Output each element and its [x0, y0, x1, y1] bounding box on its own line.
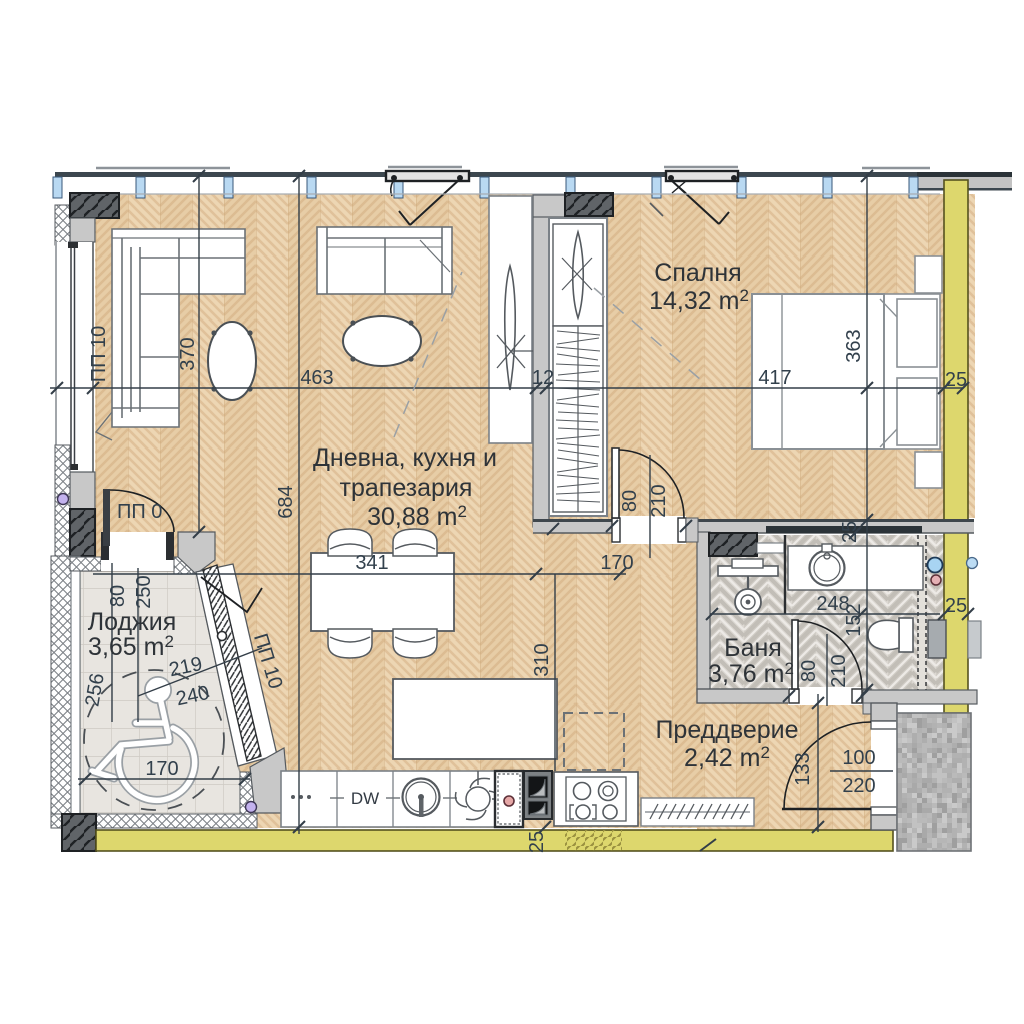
- svg-text:80: 80: [107, 585, 129, 607]
- svg-text:трапезария: трапезария: [340, 474, 473, 502]
- svg-text:210: 210: [648, 484, 670, 517]
- svg-text:3,65 m2: 3,65 m2: [88, 632, 174, 661]
- svg-text:14,32 m2: 14,32 m2: [649, 286, 749, 315]
- svg-text:463: 463: [300, 367, 333, 389]
- svg-text:100: 100: [842, 747, 875, 769]
- svg-text:80: 80: [798, 660, 820, 682]
- svg-text:170: 170: [145, 758, 178, 780]
- svg-text:30,88 m2: 30,88 m2: [367, 502, 467, 531]
- svg-text:370: 370: [177, 337, 199, 370]
- svg-text:250: 250: [133, 575, 155, 608]
- svg-text:12: 12: [532, 367, 554, 389]
- svg-text:210: 210: [828, 654, 850, 687]
- svg-text:25: 25: [945, 369, 967, 391]
- svg-text:25: 25: [945, 595, 967, 617]
- svg-text:2,42 m2: 2,42 m2: [684, 743, 770, 772]
- svg-text:Баня: Баня: [724, 634, 782, 662]
- svg-text:80: 80: [619, 490, 641, 512]
- svg-text:Спалня: Спалня: [654, 259, 741, 287]
- svg-text:3,76 m2: 3,76 m2: [708, 659, 794, 688]
- svg-text:Лоджия: Лоджия: [88, 608, 177, 636]
- svg-text:417: 417: [758, 367, 791, 389]
- svg-text:684: 684: [275, 485, 297, 518]
- svg-text:170: 170: [600, 552, 633, 574]
- svg-text:220: 220: [842, 775, 875, 797]
- svg-text:25: 25: [839, 521, 861, 543]
- svg-text:363: 363: [843, 329, 865, 362]
- svg-text:DW: DW: [351, 789, 379, 808]
- svg-text:25: 25: [526, 831, 548, 853]
- svg-text:310: 310: [531, 643, 553, 676]
- svg-text:Дневна, кухня и: Дневна, кухня и: [313, 444, 497, 472]
- svg-text:ПП 0: ПП 0: [117, 501, 162, 523]
- svg-text:133: 133: [792, 752, 814, 785]
- svg-text:152: 152: [843, 603, 865, 636]
- svg-text:Преддверие: Преддверие: [655, 716, 798, 744]
- svg-text:ПП 10: ПП 10: [88, 326, 110, 383]
- svg-text:341: 341: [355, 552, 388, 574]
